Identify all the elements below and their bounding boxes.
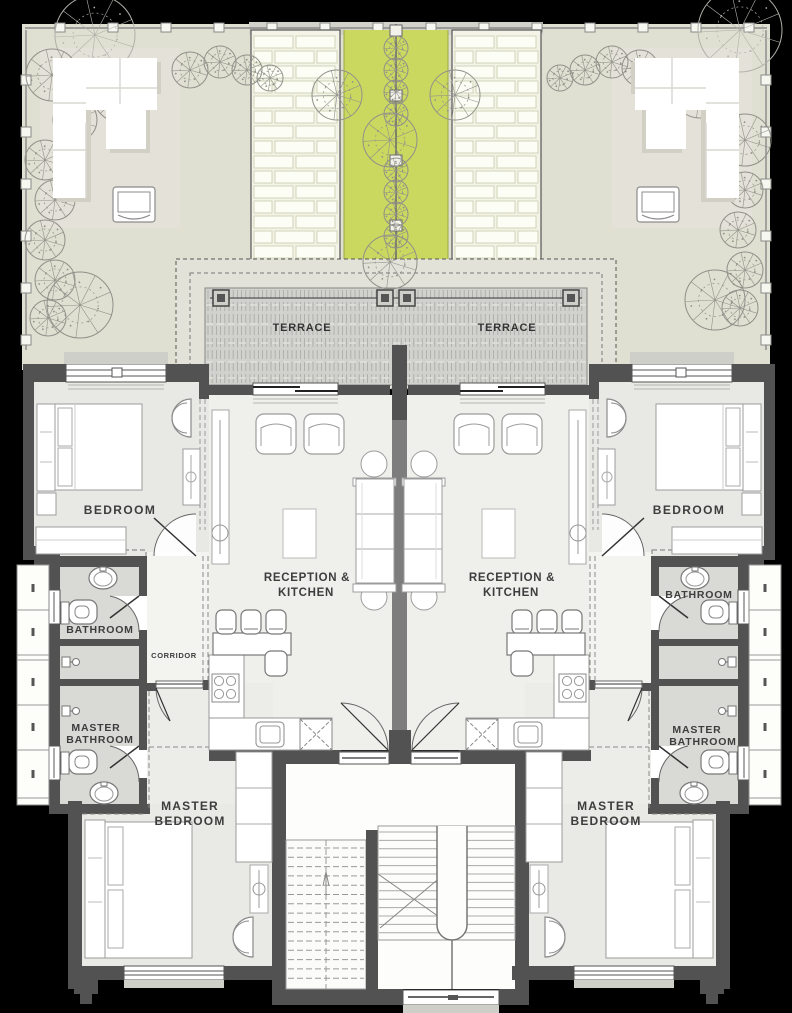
svg-text:CORRIDOR: CORRIDOR <box>151 651 197 660</box>
svg-text:RECEPTION &: RECEPTION & <box>469 572 555 584</box>
svg-text:MASTER: MASTER <box>71 722 120 734</box>
svg-text:MASTER: MASTER <box>161 799 219 813</box>
svg-text:TERRACE: TERRACE <box>273 322 332 334</box>
svg-text:TERRACE: TERRACE <box>478 322 537 334</box>
svg-text:BATHROOM: BATHROOM <box>66 734 133 746</box>
svg-text:KITCHEN: KITCHEN <box>483 587 539 599</box>
svg-text:MASTER: MASTER <box>577 799 635 813</box>
svg-text:BEDROOM: BEDROOM <box>570 814 641 828</box>
svg-text:BEDROOM: BEDROOM <box>154 814 225 828</box>
svg-text:BATHROOM: BATHROOM <box>665 589 732 601</box>
svg-text:KITCHEN: KITCHEN <box>278 587 334 599</box>
svg-text:MASTER: MASTER <box>672 724 721 736</box>
svg-text:BEDROOM: BEDROOM <box>653 503 725 517</box>
svg-text:BATHROOM: BATHROOM <box>669 736 736 748</box>
svg-text:BATHROOM: BATHROOM <box>66 624 133 636</box>
svg-text:BEDROOM: BEDROOM <box>84 503 156 517</box>
svg-text:RECEPTION &: RECEPTION & <box>264 572 350 584</box>
